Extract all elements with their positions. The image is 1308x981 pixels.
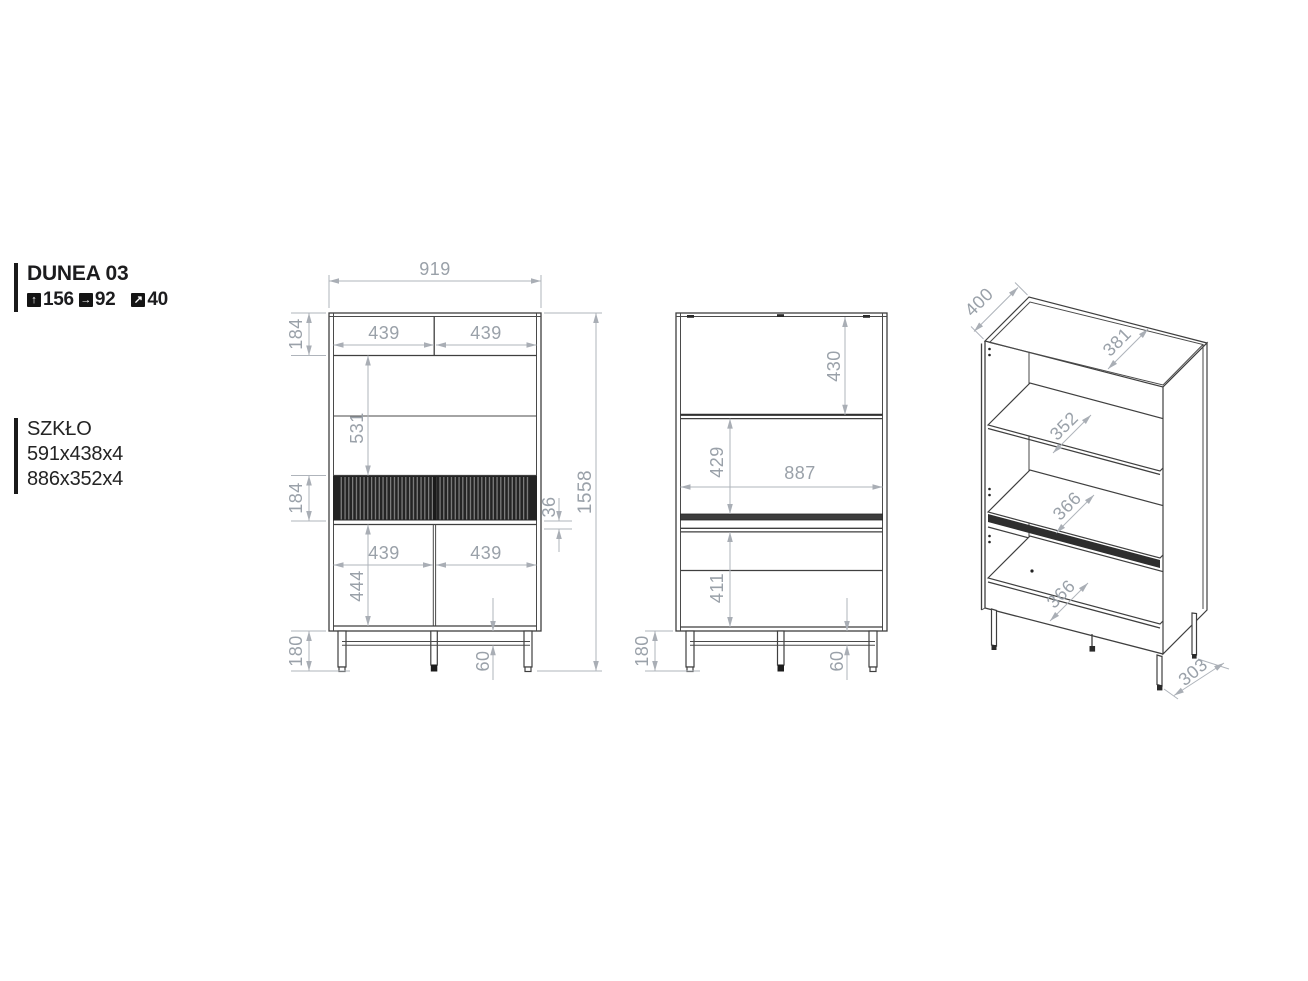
dim-front-overall-width: 919 [419,259,451,279]
dim-front-stretcher-offset: 60 [473,650,493,671]
dim-front-top-section: 184 [286,318,306,350]
dim-front-top-right-door: 439 [470,323,502,343]
dim-iso-leg-span-depth: 303 [1174,654,1211,690]
cabinet-drawing: 919 1558 184 439 439 531 [0,0,1308,981]
inside-dimensions: 430 429 887 411 180 60 [632,317,883,680]
dim-front-drawer-front: 184 [286,482,306,514]
dim-front-overall-height: 1558 [575,470,596,514]
dim-front-bottom-right-door: 439 [470,543,502,563]
iso-right-side [1163,343,1207,654]
dim-inside-internal-width: 887 [784,463,816,483]
dim-inside-leg-height: 180 [632,635,652,667]
front-elevation-view: 919 1558 184 439 439 531 [286,259,602,680]
dim-front-rail-gap: 36 [539,496,559,517]
isometric-view: 400 381 352 366 366 303 [961,283,1229,700]
fluted-drawer-front [334,477,537,521]
dim-inside-shelf-compartment: 429 [707,446,727,478]
front-legs [338,631,532,672]
dim-front-display-section: 531 [347,412,367,444]
dim-front-bottom-door-height: 444 [347,570,367,602]
dim-front-leg-height: 180 [286,635,306,667]
dim-front-bottom-left-door: 439 [368,543,400,563]
technical-drawing-sheet: DUNEA 03 ↑ 156 → 92 ↗ 40 [0,0,1308,981]
iso-cabinet-body [982,297,1208,654]
dim-inside-drawer-compartment: 411 [707,573,727,603]
dim-inside-stretcher-offset: 60 [827,650,847,671]
dim-iso-depth: 400 [961,284,997,320]
inside-legs [686,631,877,672]
dim-front-top-left-door: 439 [368,323,400,343]
internal-dimensions-view: 430 429 887 411 180 60 [632,313,887,680]
dim-inside-top-compartment: 430 [824,350,844,382]
